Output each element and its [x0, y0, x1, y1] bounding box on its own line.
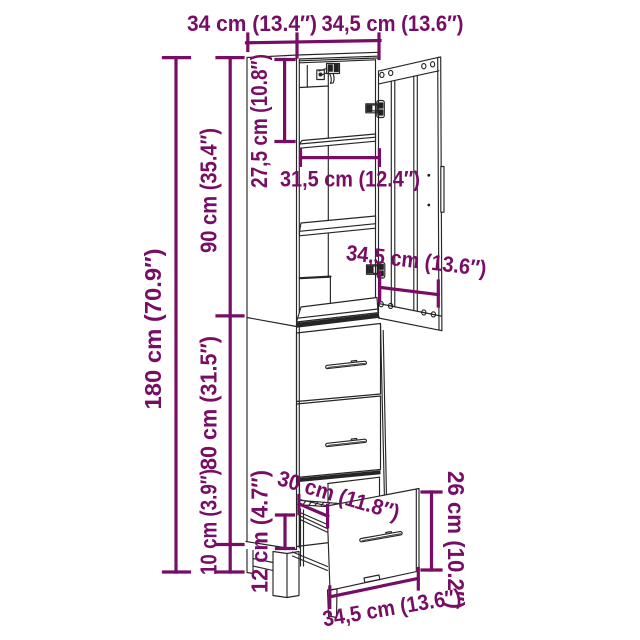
svg-text:10 cm (3.9″): 10 cm (3.9″)	[196, 469, 222, 575]
svg-text:34,5 cm (13.6″): 34,5 cm (13.6″)	[322, 11, 464, 36]
svg-text:34 cm (13.4″): 34 cm (13.4″)	[187, 11, 317, 36]
svg-text:27,5 cm (10.8″): 27,5 cm (10.8″)	[246, 54, 272, 188]
svg-text:90 cm (35.4″): 90 cm (35.4″)	[196, 128, 222, 253]
svg-text:80 cm (31.5″): 80 cm (31.5″)	[196, 336, 222, 470]
svg-text:12 cm (4.7″): 12 cm (4.7″)	[247, 470, 273, 593]
svg-text:180 cm (70.9″): 180 cm (70.9″)	[140, 249, 166, 410]
svg-text:31,5 cm (12.4″): 31,5 cm (12.4″)	[280, 167, 420, 192]
